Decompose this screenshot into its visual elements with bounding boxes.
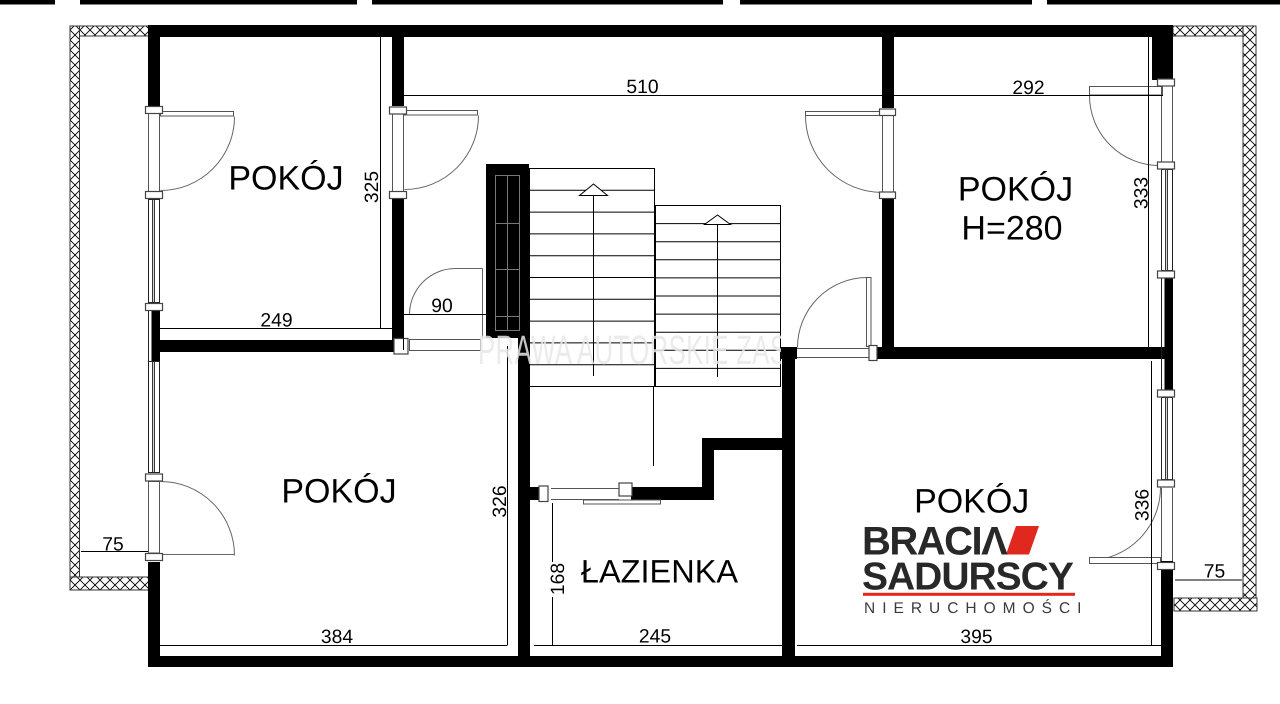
svg-text:75: 75: [1204, 562, 1225, 583]
svg-text:SADURSCY: SADURSCY: [862, 556, 1074, 599]
svg-text:325: 325: [362, 171, 383, 203]
svg-text:POKÓJ: POKÓJ: [914, 483, 1029, 521]
svg-text:326: 326: [490, 485, 511, 517]
svg-text:333: 333: [1132, 177, 1153, 209]
svg-text:292: 292: [1012, 78, 1044, 99]
svg-text:POKÓJ: POKÓJ: [281, 473, 396, 511]
svg-text:249: 249: [260, 311, 292, 332]
svg-text:ŁAZIENKA: ŁAZIENKA: [581, 554, 738, 590]
svg-text:168: 168: [548, 563, 569, 595]
svg-text:POKÓJ: POKÓJ: [228, 160, 343, 198]
svg-text:245: 245: [639, 627, 671, 648]
svg-text:75: 75: [102, 535, 123, 556]
svg-text:384: 384: [321, 627, 353, 648]
svg-text:336: 336: [1133, 489, 1154, 521]
svg-text:NIERUCHOMOŚCI: NIERUCHOMOŚCI: [864, 599, 1088, 617]
svg-text:H=280: H=280: [961, 210, 1062, 248]
svg-text:90: 90: [431, 296, 452, 317]
svg-text:395: 395: [960, 627, 992, 648]
svg-text:POKÓJ: POKÓJ: [958, 171, 1073, 209]
svg-text:510: 510: [626, 77, 658, 98]
